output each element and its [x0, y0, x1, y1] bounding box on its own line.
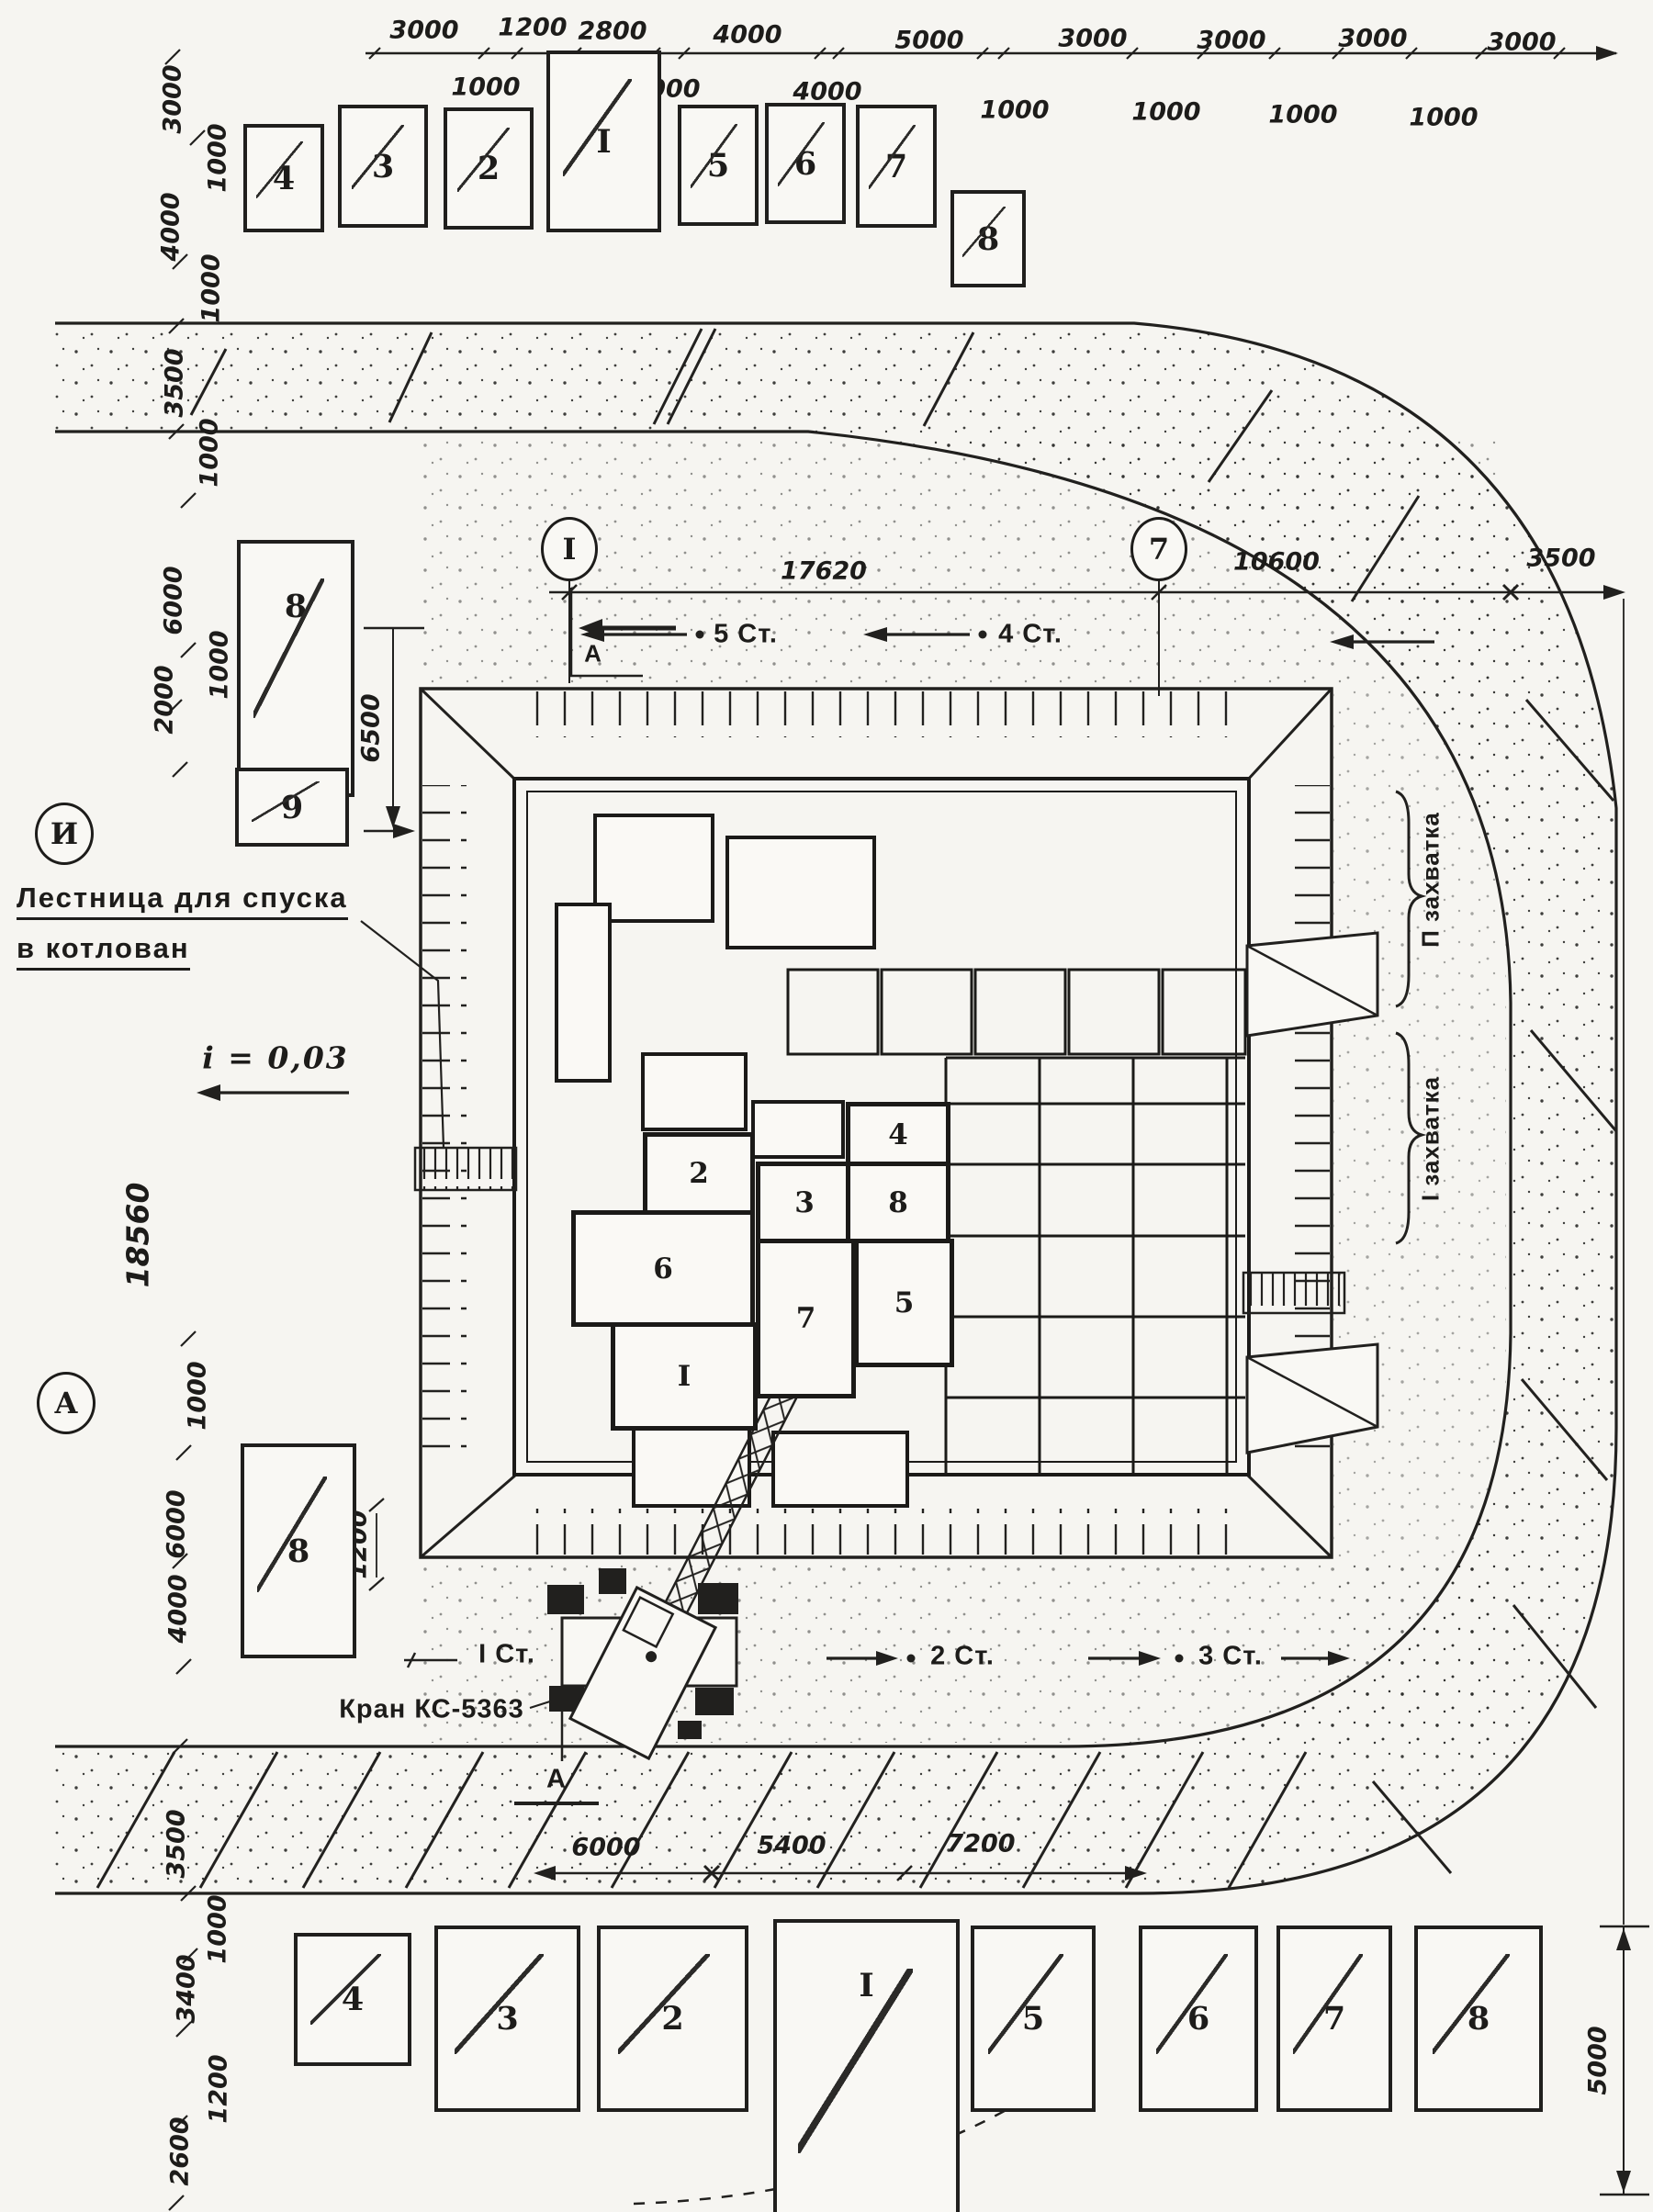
- dim-6500: 6500: [357, 693, 386, 762]
- dim-top2: 4000: [793, 78, 861, 107]
- pit-room: 8: [846, 1162, 950, 1244]
- block-stack-top: 3: [338, 105, 428, 228]
- block-stack-top: I: [546, 51, 661, 232]
- block-stack-top: 7: [856, 105, 937, 228]
- block-stack-bottom: 5: [971, 1926, 1096, 2112]
- grid-marker-I: I: [541, 517, 598, 581]
- section-mark-top: А: [584, 640, 602, 668]
- dim-left: 1000: [206, 630, 234, 699]
- dim-top2: 1000: [1409, 104, 1478, 132]
- crane-label: Кран КС-5363: [339, 1695, 524, 1725]
- dim-left: 1200: [205, 2054, 233, 2123]
- dim-left: 2000: [151, 665, 179, 734]
- dim-top: 4000: [713, 21, 782, 50]
- dim-top: 5000: [894, 27, 963, 55]
- dim-axis-3500: 3500: [1526, 545, 1595, 573]
- grid-marker-7-label: 7: [1149, 532, 1169, 567]
- station-1-label: I Ст.: [478, 1640, 535, 1670]
- block-stack-top: 8: [950, 190, 1026, 287]
- pit-room: 4: [846, 1102, 950, 1168]
- block-stack-left: 8: [241, 1443, 356, 1658]
- block-stack-bottom: 3: [434, 1926, 580, 2112]
- dim-top: 3000: [1338, 25, 1407, 53]
- dim-left: 1000: [196, 418, 224, 487]
- block-stack-top: 5: [678, 105, 759, 226]
- dim-left: 1000: [184, 1361, 212, 1430]
- dim-left: 3400: [173, 1954, 201, 2023]
- axis-marker-I-row: И: [35, 803, 94, 865]
- station-4-label: 4 Ст.: [998, 620, 1063, 650]
- zone-1-label: I захватка: [1417, 1076, 1445, 1201]
- dim-left: 2600: [166, 2117, 195, 2185]
- dim-top: 2800: [578, 17, 647, 46]
- station-5-label: 5 Ст.: [714, 620, 778, 650]
- station-3-label: 3 Ст.: [1198, 1642, 1263, 1672]
- dim-left: 3500: [161, 348, 189, 417]
- block-stack-top: 2: [444, 107, 534, 230]
- dim-top: 3000: [1197, 27, 1265, 55]
- block-stack-left: 9: [235, 768, 349, 847]
- slope-label: i = 0,03: [202, 1040, 349, 1076]
- site-plan-drawing: 3000 1200 2800 4000 5000 3000 3000 3000 …: [0, 0, 1653, 2212]
- block-stack-top: 6: [765, 103, 846, 224]
- pit-room: 2: [643, 1132, 755, 1215]
- ladder-note-line1: Лестница для спуска: [17, 881, 348, 920]
- dim-axis-10600: 10600: [1233, 548, 1320, 577]
- pit-room: 6: [571, 1210, 755, 1327]
- grid-marker-I-label: I: [563, 532, 577, 567]
- dim-left: 1000: [204, 123, 232, 192]
- axis-marker-I-label: И: [51, 816, 78, 851]
- dim-top: 3000: [1487, 28, 1556, 57]
- block-stack-left: 8: [237, 540, 354, 797]
- block-stack-bottom: 7: [1276, 1926, 1392, 2112]
- block-stack-bottom: 4: [294, 1933, 411, 2066]
- dim-axis-17620: 17620: [781, 557, 867, 586]
- dim-left-overall: 18560: [120, 1183, 156, 1288]
- dim-top2: 1000: [1268, 101, 1337, 129]
- section-mark-bottom: А: [546, 1765, 567, 1795]
- pit-room: 3: [756, 1162, 853, 1244]
- dim-top2: 1000: [451, 73, 520, 102]
- axis-marker-A-row: А: [37, 1372, 96, 1434]
- dim-top: 3000: [1058, 25, 1127, 53]
- plan-linework: [0, 0, 1653, 2212]
- dim-top2: 1000: [980, 96, 1049, 125]
- pit-room: 5: [854, 1239, 954, 1367]
- dim-left: 1000: [197, 253, 226, 322]
- dim-top2: 1000: [1131, 98, 1200, 127]
- pit-room: I: [611, 1322, 758, 1431]
- block-stack-bottom: I: [773, 1919, 960, 2212]
- dim-left: 3500: [163, 1809, 191, 1878]
- dim-left: 4000: [157, 192, 186, 261]
- pit-room: 7: [756, 1239, 856, 1398]
- dim-left: 6000: [163, 1489, 191, 1558]
- dim-left: 6000: [160, 566, 188, 634]
- dim-left: 4000: [164, 1574, 193, 1643]
- block-stack-bottom: 2: [597, 1926, 748, 2112]
- axis-marker-A-label: А: [54, 1386, 78, 1420]
- zone-2-label: П захватка: [1417, 812, 1445, 948]
- dim-top: 3000: [389, 17, 458, 45]
- dim-road-6000: 6000: [571, 1834, 640, 1862]
- grid-marker-7: 7: [1130, 517, 1187, 581]
- dim-road-5400: 5400: [757, 1832, 826, 1860]
- dim-left: 3000: [159, 64, 187, 133]
- block-stack-bottom: 6: [1139, 1926, 1258, 2112]
- dim-5000: 5000: [1584, 2026, 1613, 2094]
- ladder-note-line2: в котлован: [17, 932, 190, 971]
- dim-top: 1200: [498, 14, 567, 42]
- dim-road-7200: 7200: [946, 1830, 1015, 1858]
- block-stack-top: 4: [243, 124, 324, 232]
- station-2-label: 2 Ст.: [930, 1642, 995, 1672]
- block-stack-bottom: 8: [1414, 1926, 1543, 2112]
- dim-left: 1000: [204, 1894, 232, 1963]
